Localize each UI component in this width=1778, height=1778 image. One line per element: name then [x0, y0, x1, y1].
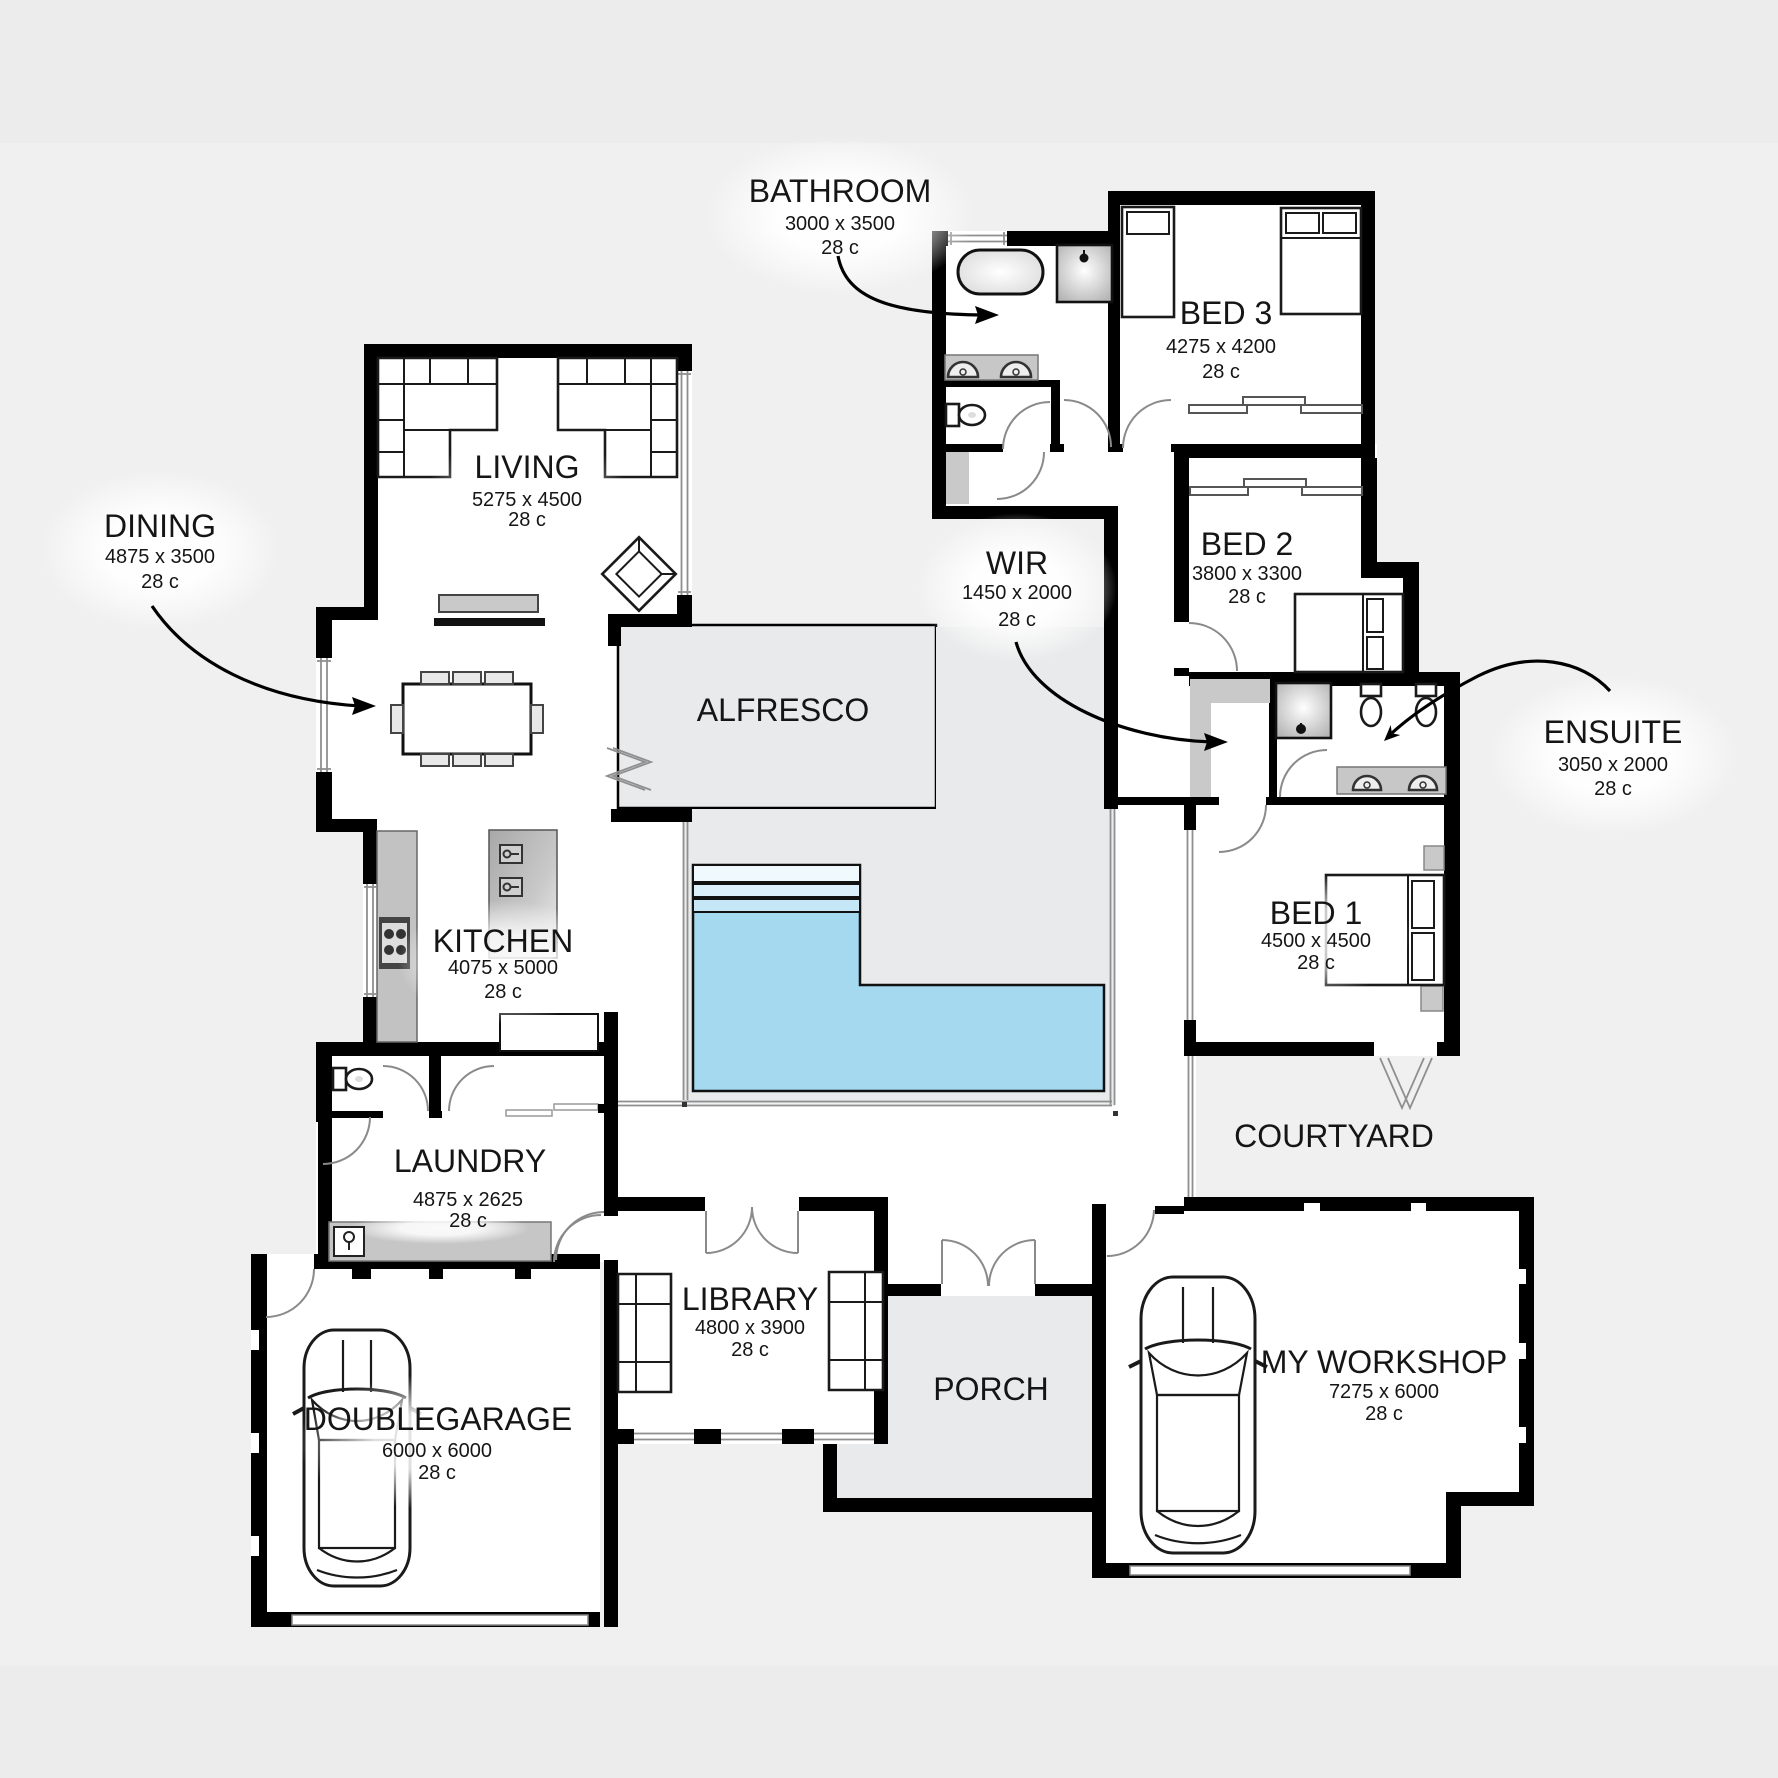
svg-text:COURTYARD: COURTYARD — [1234, 1118, 1434, 1154]
svg-text:28 c: 28 c — [1202, 361, 1240, 383]
svg-text:1450 x 2000: 1450 x 2000 — [962, 582, 1072, 604]
svg-text:28 c: 28 c — [449, 1210, 487, 1232]
svg-text:DOUBLEGARAGE: DOUBLEGARAGE — [304, 1401, 573, 1437]
svg-text:6000 x 6000: 6000 x 6000 — [382, 1440, 492, 1462]
svg-text:3800 x 3300: 3800 x 3300 — [1192, 563, 1302, 585]
svg-text:28 c: 28 c — [1594, 778, 1632, 800]
svg-text:4875 x 3500: 4875 x 3500 — [105, 546, 215, 568]
svg-text:28 c: 28 c — [731, 1339, 769, 1361]
svg-text:ALFRESCO: ALFRESCO — [697, 692, 869, 728]
svg-text:4800 x 3900: 4800 x 3900 — [695, 1317, 805, 1339]
svg-text:28 c: 28 c — [821, 237, 859, 259]
svg-text:LIVING: LIVING — [475, 449, 580, 485]
svg-text:LAUNDRY: LAUNDRY — [394, 1143, 546, 1179]
svg-text:WIR: WIR — [986, 545, 1048, 581]
svg-text:28 c: 28 c — [998, 609, 1036, 631]
svg-text:28 c: 28 c — [1365, 1403, 1403, 1425]
svg-text:BATHROOM: BATHROOM — [749, 173, 932, 209]
svg-text:4875 x 2625: 4875 x 2625 — [413, 1189, 523, 1211]
svg-text:28 c: 28 c — [1228, 586, 1266, 608]
svg-text:DINING: DINING — [104, 508, 216, 544]
svg-text:7275 x 6000: 7275 x 6000 — [1329, 1381, 1439, 1403]
svg-text:4075 x 5000: 4075 x 5000 — [448, 957, 558, 979]
svg-text:28 c: 28 c — [484, 981, 522, 1003]
svg-text:PORCH: PORCH — [933, 1371, 1049, 1407]
svg-text:5275 x 4500: 5275 x 4500 — [472, 489, 582, 511]
svg-text:BED 3: BED 3 — [1180, 295, 1272, 331]
svg-text:ENSUITE: ENSUITE — [1544, 714, 1683, 750]
svg-text:28 c: 28 c — [418, 1462, 456, 1484]
svg-text:MY WORKSHOP: MY WORKSHOP — [1261, 1344, 1508, 1380]
svg-text:4500 x 4500: 4500 x 4500 — [1261, 930, 1371, 952]
svg-text:3000 x 3500: 3000 x 3500 — [785, 213, 895, 235]
svg-text:BED 2: BED 2 — [1201, 526, 1293, 562]
svg-text:3050 x 2000: 3050 x 2000 — [1558, 754, 1668, 776]
svg-text:28 c: 28 c — [141, 571, 179, 593]
svg-text:28 c: 28 c — [1297, 952, 1335, 974]
svg-text:LIBRARY: LIBRARY — [682, 1281, 818, 1317]
svg-text:KITCHEN: KITCHEN — [433, 923, 573, 959]
svg-text:28 c: 28 c — [508, 509, 546, 531]
svg-text:BED 1: BED 1 — [1270, 895, 1362, 931]
svg-text:4275 x 4200: 4275 x 4200 — [1166, 336, 1276, 358]
